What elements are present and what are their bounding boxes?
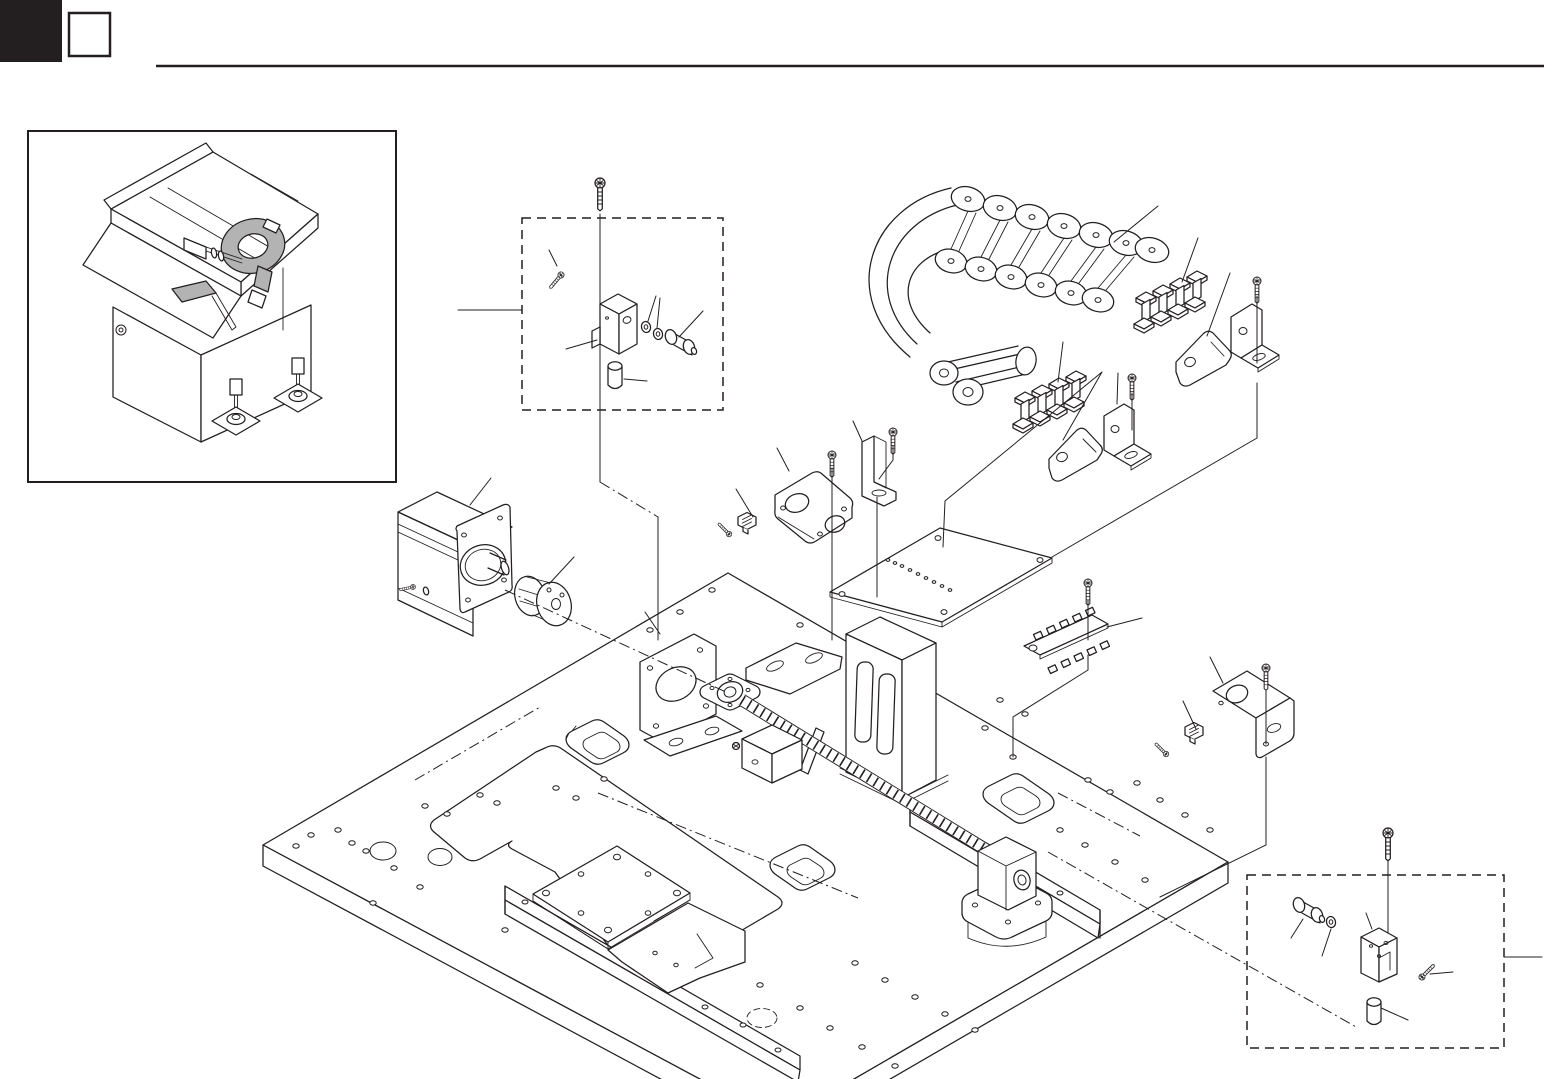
header-checkbox-icon	[69, 13, 110, 56]
mid-mount-bracket	[775, 472, 853, 543]
exploded-view-figure	[0, 0, 1556, 1079]
shaft-coupling	[510, 573, 576, 630]
right-mount-bracket	[1213, 671, 1294, 758]
column-top-plate	[830, 528, 1052, 627]
upper-detail-box	[458, 178, 723, 482]
cable-drag-chain	[869, 183, 1172, 405]
photo-sensor	[738, 513, 756, 535]
motor	[398, 492, 512, 636]
header-marks	[0, 0, 1544, 66]
machine-location-inset	[28, 131, 396, 482]
page	[0, 0, 1556, 1079]
cable-clamp-comb	[1024, 607, 1110, 673]
main-assembly	[263, 428, 1294, 1079]
page-corner-marker-icon	[0, 0, 62, 62]
